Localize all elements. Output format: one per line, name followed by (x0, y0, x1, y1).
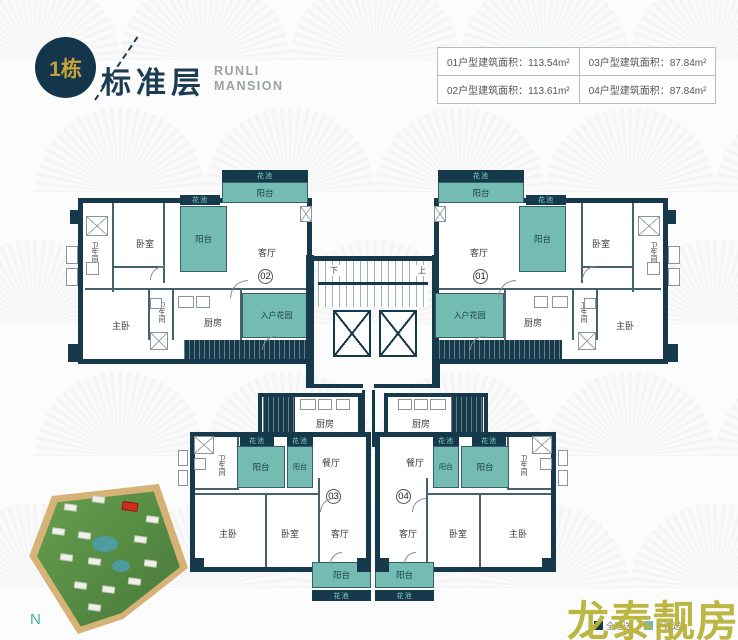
site-plan-pond (92, 536, 118, 552)
fixture (86, 216, 108, 236)
fixture (398, 399, 412, 410)
equipment-box (558, 470, 568, 486)
room-label-bedroom: 卧室 (276, 527, 304, 540)
fixture (552, 296, 568, 308)
stairs-down-label: 下 (328, 265, 340, 276)
room-label-bedroom: 卧室 (131, 237, 159, 250)
site-plan-grounds (34, 492, 180, 627)
room-label-living: 客厅 (326, 527, 354, 540)
room-label-living: 客厅 (465, 246, 493, 259)
elevator (333, 310, 371, 357)
room-label-dining: 餐厅 (401, 456, 429, 469)
stairwell-block (263, 397, 295, 435)
ac-platform (439, 340, 562, 359)
partition (596, 290, 598, 340)
wall (190, 558, 204, 572)
unit-number-02: 02 (258, 269, 273, 284)
flower-bed-bar: 花池 (472, 436, 506, 446)
flower-bed-bar: 花池 (240, 436, 274, 446)
watermark: 龙泰靓房 (567, 588, 738, 640)
fixture (336, 399, 350, 410)
window (300, 206, 312, 222)
room-label-master: 主卧 (611, 319, 639, 332)
room-label-bathroom: 卫生间 (518, 455, 528, 489)
site-plan-thumbnail (26, 484, 188, 634)
partition (195, 493, 318, 495)
building-badge: 1栋 (35, 37, 96, 98)
fixture (540, 458, 552, 470)
balcony: 阳台 (519, 206, 566, 272)
room-label-kitchen: 厨房 (311, 417, 339, 430)
partition (479, 495, 481, 567)
wall (542, 558, 556, 572)
partition (509, 488, 551, 490)
room-label-bedroom: 卧室 (444, 527, 472, 540)
brand-line1: RUNLI (214, 64, 284, 79)
wall (357, 558, 371, 572)
room-label-living: 客厅 (394, 527, 422, 540)
room-label-kitchen: 厨房 (519, 316, 547, 329)
room-label-kitchen: 厨房 (199, 316, 227, 329)
room-label-bedroom: 卧室 (587, 237, 615, 250)
fixture (578, 332, 596, 350)
flower-bed-bar: 花池 (375, 590, 434, 601)
brand-name: RUNLI MANSION (214, 64, 284, 94)
table-row: 02户型建筑面积：113.61m² 04户型建筑面积：87.84m² (438, 76, 716, 104)
fixture (194, 458, 206, 470)
balcony: 阳台 (287, 446, 313, 488)
fixture (584, 298, 596, 309)
room-label-master: 主卧 (504, 527, 532, 540)
equipment-box (178, 450, 188, 466)
ac-platform (184, 340, 307, 359)
partition (572, 290, 574, 340)
room-label-dining: 餐厅 (317, 456, 345, 469)
balcony: 阳台 (180, 206, 227, 272)
wall (318, 282, 428, 285)
fixture (647, 262, 660, 275)
wall (374, 384, 432, 388)
flower-bed-bar: 花池 (222, 170, 308, 182)
equipment-box (66, 246, 78, 264)
wall (666, 210, 676, 224)
fixture (196, 296, 210, 308)
fixture (86, 262, 99, 275)
partition (318, 478, 320, 567)
window (434, 206, 446, 222)
fixture (300, 399, 316, 410)
partition (439, 288, 661, 290)
site-plan-pond (112, 560, 130, 572)
north-label: N (30, 611, 41, 628)
flower-bed-bar: 花池 (433, 436, 459, 446)
stairwell-block (451, 397, 483, 435)
wall (306, 255, 314, 388)
elevator (379, 310, 417, 357)
fixture (430, 399, 446, 410)
unit-number-01: 01 (473, 269, 488, 284)
equipment-box (66, 268, 78, 286)
wall (68, 344, 82, 362)
entry-garden: 入户花园 (435, 293, 504, 338)
equipment-box (668, 268, 680, 286)
fixture (150, 332, 168, 350)
area-cell-02: 02户型建筑面积：113.61m² (438, 76, 580, 104)
flower-bed-bar: 花池 (312, 590, 371, 601)
partition (428, 493, 551, 495)
equipment-box (558, 450, 568, 466)
partition (85, 288, 307, 290)
flower-bed-bar: 花池 (526, 195, 566, 205)
room-label-living: 客厅 (253, 246, 281, 259)
area-cell-03: 03户型建筑面积：87.84m² (579, 48, 716, 76)
wall (70, 210, 80, 224)
unit-number-04: 04 (396, 489, 411, 504)
fixture (178, 296, 194, 308)
wall (664, 344, 678, 362)
fixture (194, 436, 214, 454)
fixture (414, 399, 428, 410)
fixture (638, 216, 660, 236)
brand-line2: MANSION (214, 79, 284, 94)
room-label-bathroom: 卫生间 (216, 455, 226, 489)
fixture (318, 399, 332, 410)
wall (375, 558, 389, 572)
page-title: 标准层 (101, 58, 206, 102)
room-label-master: 主卧 (214, 527, 242, 540)
partition (426, 478, 428, 567)
partition (632, 203, 634, 292)
area-cell-01: 01户型建筑面积：113.54m² (438, 48, 580, 76)
fixture (532, 436, 552, 454)
room-label-kitchen: 厨房 (407, 417, 435, 430)
table-row: 01户型建筑面积：113.54m² 03户型建筑面积：87.84m² (438, 48, 716, 76)
area-cell-04: 04户型建筑面积：87.84m² (579, 76, 716, 104)
stairs-up-label: 上 (416, 265, 428, 276)
balcony: 阳台 (433, 446, 459, 488)
room-label-master: 主卧 (107, 319, 135, 332)
fixture (150, 298, 162, 309)
equipment-box (668, 246, 680, 264)
partition (265, 495, 267, 567)
flower-bed-bar: 花池 (438, 170, 524, 182)
balcony: 阳台 (461, 446, 509, 488)
entry-garden: 入户花园 (242, 293, 311, 338)
floor-plan-page: 1栋 标准层 RUNLI MANSION 01户型建筑面积：113.54m² 0… (0, 0, 738, 640)
partition (581, 203, 583, 283)
partition (112, 203, 114, 292)
balcony: 阳台 (222, 182, 308, 203)
balcony: 阳台 (438, 182, 524, 203)
partition (172, 290, 174, 340)
flower-bed-bar: 花池 (287, 436, 313, 446)
flower-bed-bar: 花池 (180, 195, 220, 205)
balcony: 阳台 (237, 446, 285, 488)
fixture (534, 296, 548, 308)
wall (314, 384, 363, 388)
unit-area-table: 01户型建筑面积：113.54m² 03户型建筑面积：87.84m² 02户型建… (437, 47, 716, 104)
